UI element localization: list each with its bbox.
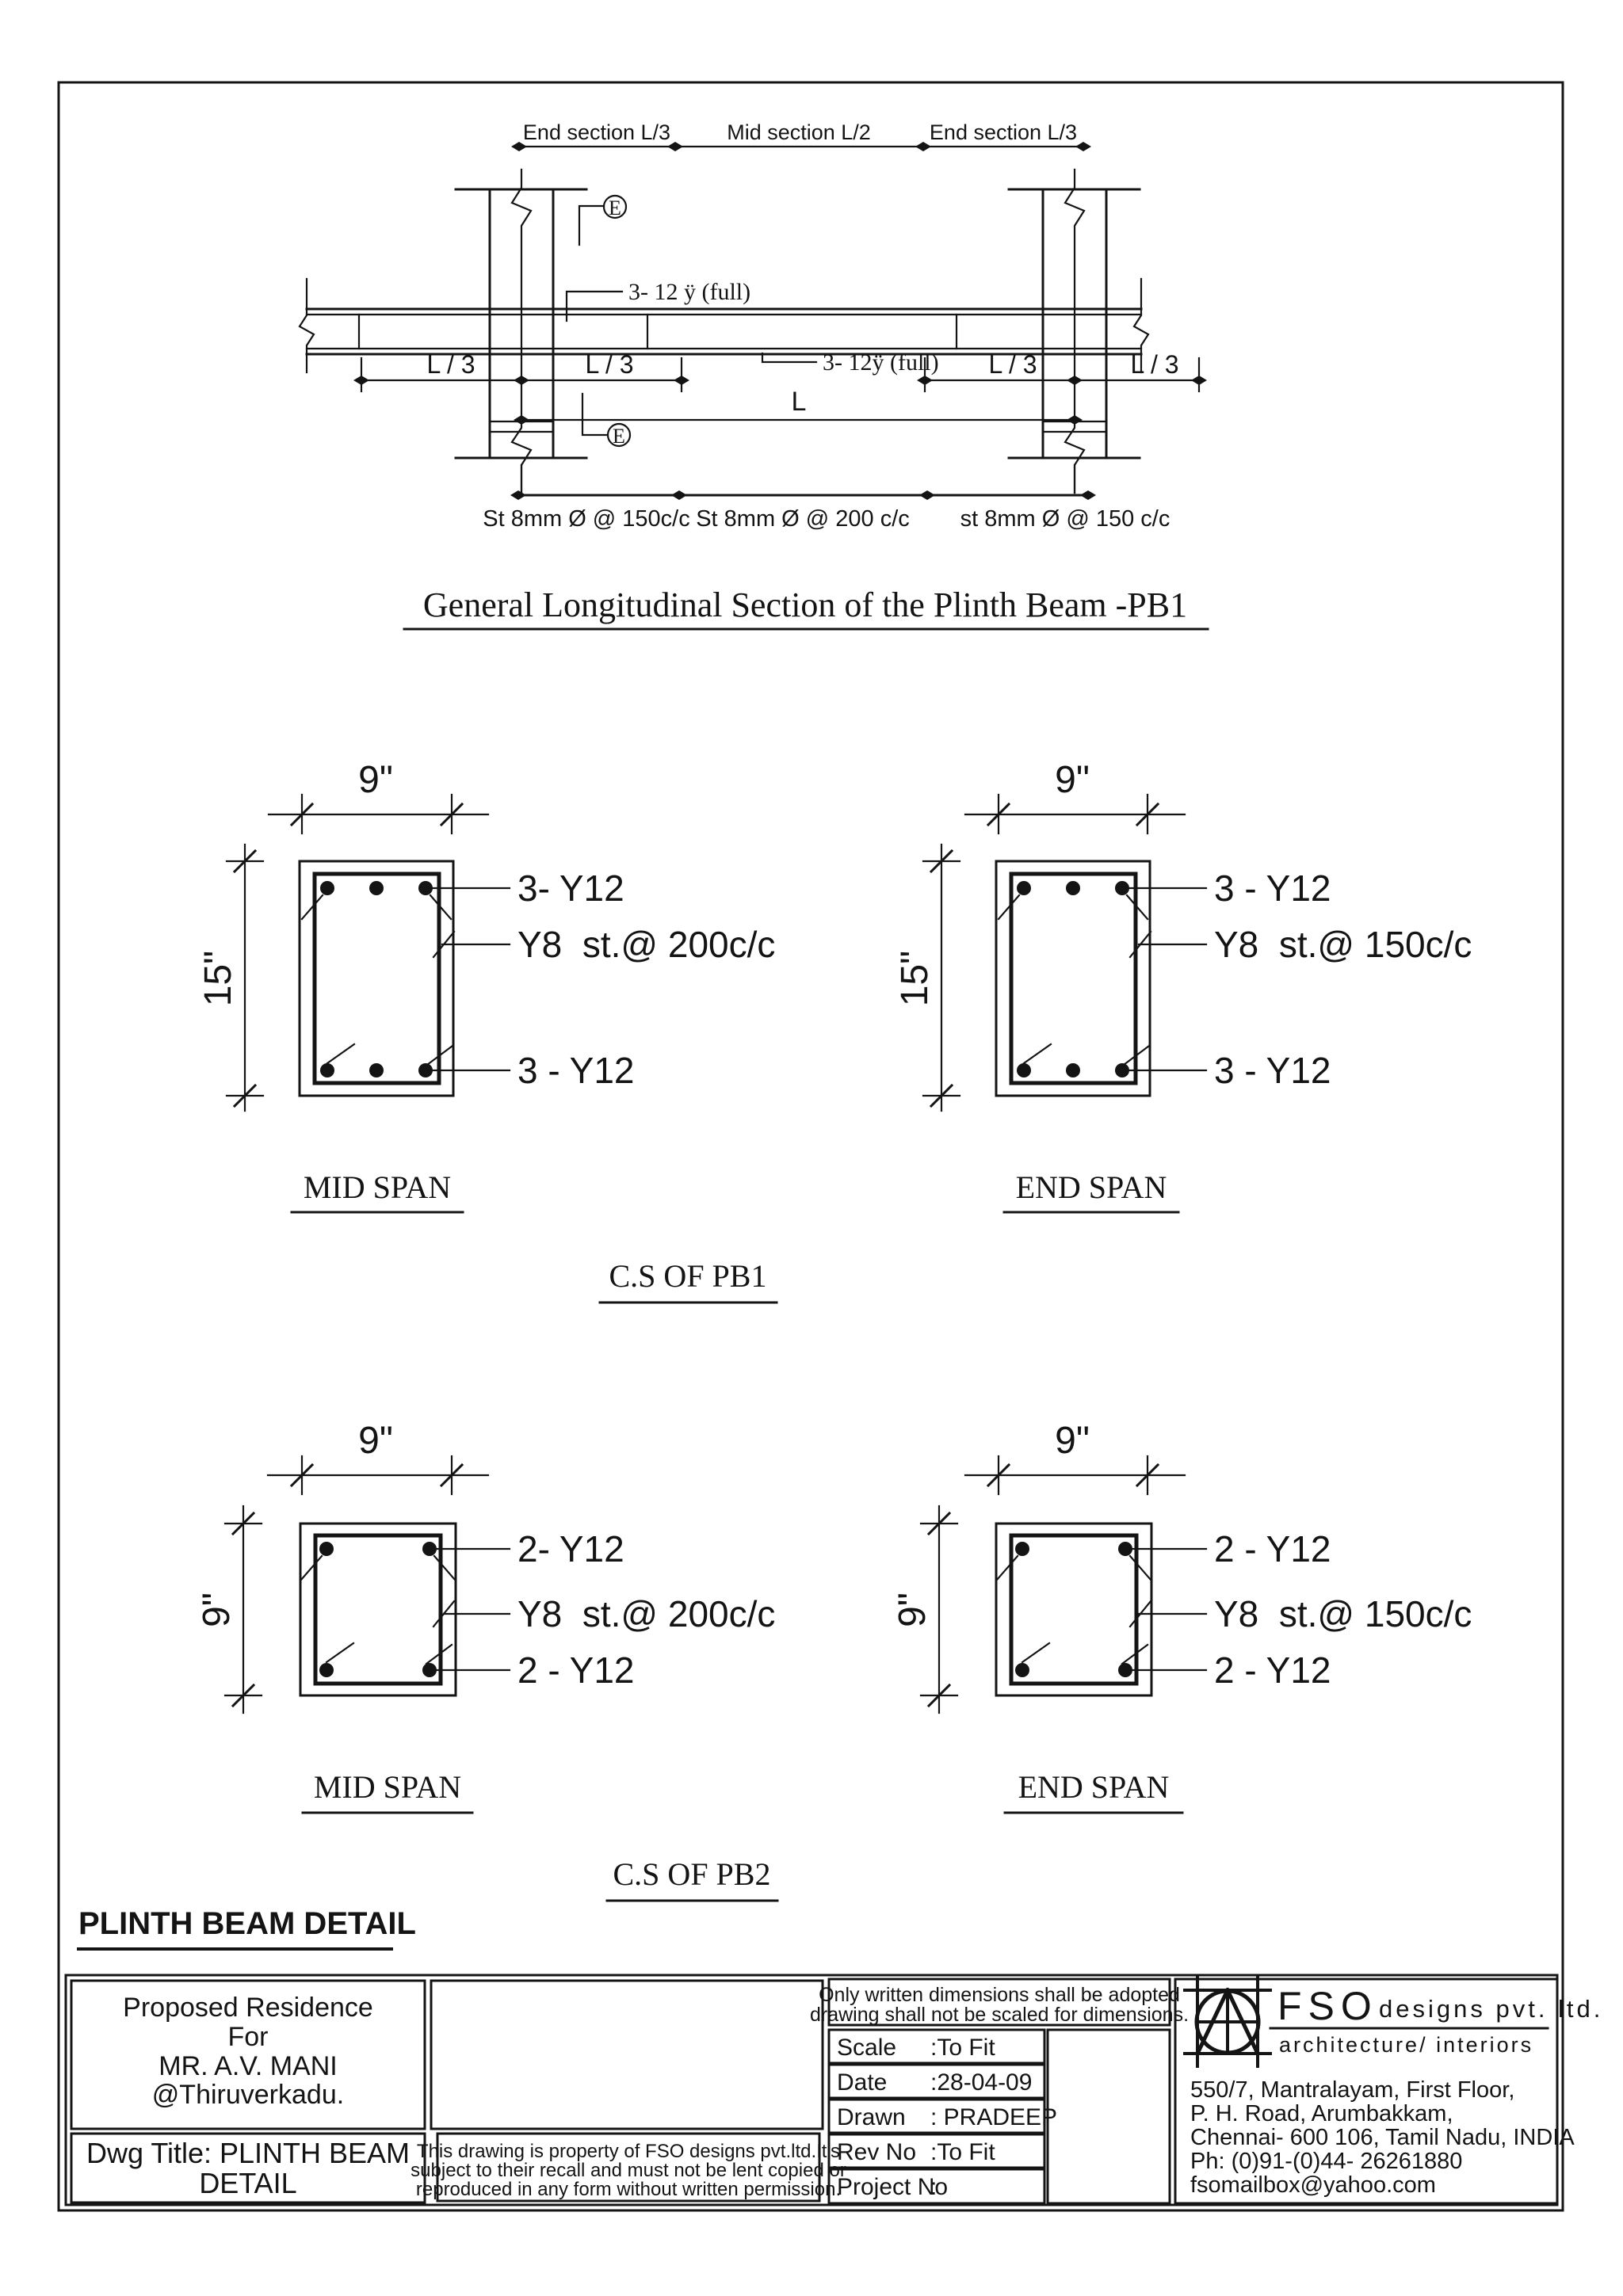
bottom-rebar-label: 3- 12ÿ (full): [823, 349, 939, 376]
drawing-sheet: End section L/3 Mid section L/2 End sect…: [0, 0, 1623, 2296]
firm-tagline: architecture/ interiors: [1279, 2033, 1533, 2057]
pb2-end-bottom-bars-label: 2 - Y12: [1214, 1650, 1331, 1691]
firm-address-line: 550/7, Mantralayam, First Floor,: [1190, 2077, 1514, 2103]
pb2-mid-width-dimension: 9": [268, 1420, 488, 1494]
pb2-end-width-label: 9": [1055, 1420, 1090, 1462]
pb1-mid-width-label: 9": [358, 759, 393, 801]
end-section-left-label: End section L/3: [523, 120, 670, 144]
project-line: For: [228, 2022, 269, 2052]
pb1-end-width-label: 9": [1055, 759, 1090, 801]
firm-address-line: P. H. Road, Arumbakkam,: [1190, 2101, 1453, 2126]
pb2-mid-caption: MID SPAN: [314, 1769, 461, 1805]
pb1-end-height-dimension: 15": [894, 845, 960, 1111]
total-span-label: L: [792, 387, 807, 417]
span-third-label-1: L / 3: [426, 350, 475, 379]
property-note-line: This drawing is property of FSO designs …: [417, 2141, 840, 2162]
projectno-value: :: [930, 2174, 937, 2200]
stirrup-zone-label-3: st 8mm Ø @ 150 c/c: [960, 506, 1170, 532]
pb2-end-width-dimension: 9": [965, 1420, 1185, 1494]
cs-pb2-caption: C.S OF PB2: [613, 1856, 771, 1892]
pb2-end-height-dimension: 9": [892, 1506, 957, 1713]
pb2-mid-top-bars-label: 2- Y12: [517, 1528, 624, 1569]
end-marker-top-letter: E: [609, 196, 621, 219]
drawn-label: Drawn: [837, 2104, 906, 2130]
pb2-end-caption: END SPAN: [1018, 1769, 1170, 1805]
longitudinal-title: General Longitudinal Section of the Plin…: [423, 585, 1187, 624]
top-dimension-line: End section L/3 Mid section L/2 End sect…: [511, 120, 1091, 151]
pb1-end-width-dimension: 9": [965, 759, 1185, 833]
firm-name: FSO: [1277, 1984, 1378, 2028]
cs-pb1-caption: C.S OF PB1: [609, 1258, 767, 1294]
dwg-title-line: DETAIL: [199, 2167, 296, 2199]
scale-value: :To Fit: [930, 2035, 995, 2061]
project-line: Proposed Residence: [123, 1993, 373, 2023]
revno-label: Rev No: [837, 2139, 916, 2165]
pb1-mid-section: 9" 15" 3- Y12 Y8 st.@ 200c/c 3 - Y12: [197, 759, 775, 1111]
span-third-label-4: L / 3: [1130, 350, 1178, 379]
pb2-mid-height-dimension: 9": [196, 1506, 262, 1713]
pb1-end-section: 9" 15" 3 - Y12 Y8 st.@ 150c/c 3 - Y12: [894, 759, 1472, 1111]
pb1-end-top-bars-label: 3 - Y12: [1214, 868, 1331, 909]
date-value: :28-04-09: [930, 2069, 1032, 2096]
signature-cell: [1048, 2030, 1170, 2203]
end-marker-bottom-letter: E: [613, 425, 625, 448]
stirrup-zone-label-2: St 8mm Ø @ 200 c/c: [696, 506, 910, 532]
firm-type: designs pvt. ltd.: [1379, 1995, 1603, 2023]
blank-cell: [431, 1981, 823, 2129]
property-note-line: subject to their recall and must not be …: [411, 2160, 846, 2181]
longitudinal-section: End section L/3 Mid section L/2 End sect…: [300, 120, 1208, 629]
top-rebar-label: 3- 12 ÿ (full): [628, 279, 750, 305]
project-line: MR. A.V. MANI: [158, 2051, 337, 2081]
pb2-mid-bottom-bars-label: 2 - Y12: [517, 1650, 634, 1691]
dimension-note-line: drawing shall not be scaled for dimensio…: [810, 2004, 1189, 2026]
dimension-note-line: Only written dimensions shall be adopted: [819, 1984, 1180, 2006]
left-column: [456, 170, 586, 493]
pb1-mid-width-dimension: 9": [269, 759, 488, 833]
project-line: @Thiruverkadu.: [152, 2080, 344, 2110]
pb2-end-height-label: 9": [892, 1592, 934, 1627]
pb2-end-top-bars-label: 2 - Y12: [1214, 1528, 1331, 1569]
fso-logo-icon: [1185, 1978, 1270, 2066]
pb1-mid-height-dimension: 15": [197, 845, 263, 1111]
stirrup-zone-label-1: St 8mm Ø @ 150c/c: [483, 506, 690, 532]
pb1-mid-stirrup-label: Y8 st.@ 200c/c: [517, 924, 775, 965]
right-column: [1009, 170, 1140, 493]
pb2-end-stirrup-label: Y8 st.@ 150c/c: [1214, 1593, 1472, 1634]
sheet-border-frame: [59, 82, 1563, 2210]
firm-address-line: fsomailbox@yahoo.com: [1190, 2172, 1436, 2198]
pb1-end-bottom-bars-label: 3 - Y12: [1214, 1050, 1331, 1091]
end-section-right-label: End section L/3: [930, 120, 1077, 144]
dwg-title-line: Dwg Title: PLINTH BEAM: [86, 2137, 410, 2169]
pb1-end-caption: END SPAN: [1016, 1169, 1167, 1205]
pb1-mid-height-label: 15": [197, 951, 239, 1006]
span-third-label-2: L / 3: [585, 350, 633, 379]
property-note-line: reproduced in any form without written p…: [416, 2179, 841, 2200]
pb1-mid-bottom-bars-label: 3 - Y12: [517, 1050, 634, 1091]
pb2-end-section: 9" 9" 2 - Y12 Y8 st.@ 150c/c 2 - Y12: [892, 1420, 1472, 1713]
date-label: Date: [837, 2069, 887, 2096]
pb1-mid-caption: MID SPAN: [304, 1169, 451, 1205]
end-marker-top: E: [579, 196, 626, 245]
pb1-end-stirrup-label: Y8 st.@ 150c/c: [1214, 924, 1472, 965]
total-span-dimension: L: [514, 387, 1083, 425]
pb1-end-height-label: 15": [894, 951, 936, 1006]
stirrup-zone-dimension: St 8mm Ø @ 150c/c St 8mm Ø @ 200 c/c st …: [483, 465, 1170, 532]
firm-address-line: Chennai- 600 106, Tamil Nadu, INDIA: [1190, 2125, 1575, 2150]
pb2-mid-height-label: 9": [196, 1592, 238, 1627]
mid-section-label: Mid section L/2: [727, 120, 871, 144]
drawn-value: : PRADEEP: [930, 2104, 1057, 2130]
revno-value: :To Fit: [930, 2139, 995, 2165]
title-block: Proposed Residence For MR. A.V. MANI @Th…: [66, 1975, 1603, 2205]
pb2-mid-stirrup-label: Y8 st.@ 200c/c: [517, 1593, 775, 1634]
sheet-heading: PLINTH BEAM DETAIL: [78, 1906, 416, 1941]
pb2-mid-section: 9" 9" 2- Y12 Y8 st.@ 200c/c 2 - Y12: [196, 1420, 775, 1713]
firm-address-line: Ph: (0)91-(0)44- 26261880: [1190, 2149, 1462, 2174]
scale-label: Scale: [837, 2035, 896, 2061]
pb2-mid-width-label: 9": [358, 1420, 393, 1462]
span-third-dimensions: L / 3 L / 3 L / 3 L / 3: [353, 350, 1207, 391]
span-third-label-3: L / 3: [988, 350, 1037, 379]
pb1-mid-top-bars-label: 3- Y12: [517, 868, 624, 909]
